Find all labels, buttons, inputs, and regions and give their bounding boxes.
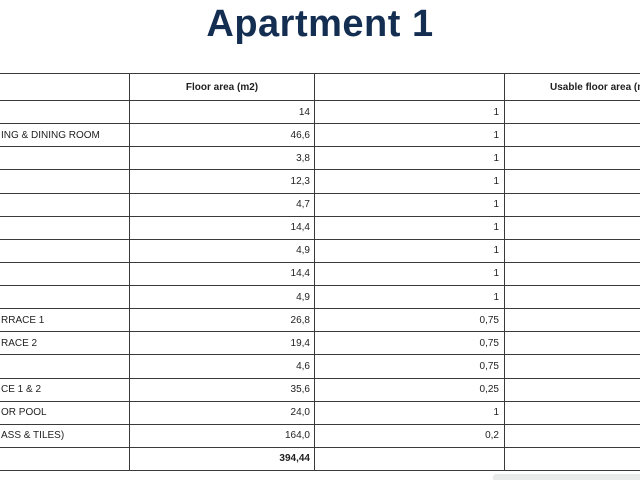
floor-area-cell: 26,8 [130, 309, 315, 332]
total-room-name-cell [0, 448, 130, 471]
room-name-cell [0, 355, 130, 378]
room-name-cell [0, 217, 130, 240]
coefficient-cell: 0,2 [315, 425, 505, 448]
floor-area-cell: 35,6 [130, 379, 315, 402]
usable-area-cell [505, 332, 640, 355]
usable-area-cell [505, 124, 640, 147]
room-name-cell [0, 263, 130, 286]
room-name-cell: ING & DINING ROOM [0, 124, 130, 147]
coefficient-cell: 1 [315, 101, 505, 124]
coefficient-cell: 0,75 [315, 309, 505, 332]
usable-area-cell [505, 402, 640, 425]
room-name-cell [0, 194, 130, 217]
floor-area-cell: 4,6 [130, 355, 315, 378]
coefficient-cell: 0,75 [315, 355, 505, 378]
coefficient-cell: 0,25 [315, 379, 505, 402]
page: Apartment 1 Floor area (m2)Usable floor … [0, 0, 640, 480]
floor-area-cell: 46,6 [130, 124, 315, 147]
coefficient-cell: 1 [315, 402, 505, 425]
floor-area-cell: 14,4 [130, 263, 315, 286]
floor-area-cell: 4,7 [130, 194, 315, 217]
coefficient-cell: 0,75 [315, 332, 505, 355]
total-usable-area-cell [505, 448, 640, 471]
room-name-cell [0, 147, 130, 170]
total-floor-area-cell: 394,44 [130, 448, 315, 471]
usable-area-cell [505, 194, 640, 217]
usable-area-cell [505, 425, 640, 448]
room-name-cell [0, 240, 130, 263]
coefficient-cell: 1 [315, 124, 505, 147]
room-name-cell: ASS & TILES) [0, 425, 130, 448]
floor-area-cell: 12,3 [130, 170, 315, 193]
page-title: Apartment 1 [0, 3, 640, 46]
header-usable-area: Usable floor area (m [505, 74, 640, 101]
usable-area-cell [505, 263, 640, 286]
room-name-cell: CE 1 & 2 [0, 379, 130, 402]
floor-area-cell: 4,9 [130, 240, 315, 263]
usable-area-cell [505, 240, 640, 263]
room-name-cell: RRACE 1 [0, 309, 130, 332]
usable-area-cell [505, 101, 640, 124]
usable-area-cell [505, 217, 640, 240]
coefficient-cell: 1 [315, 170, 505, 193]
usable-area-cell [505, 379, 640, 402]
header-floor-area: Floor area (m2) [130, 74, 315, 101]
room-name-cell [0, 170, 130, 193]
room-name-cell [0, 101, 130, 124]
coefficient-cell: 1 [315, 217, 505, 240]
room-name-cell: OR POOL [0, 402, 130, 425]
coefficient-cell: 1 [315, 147, 505, 170]
room-name-cell [0, 286, 130, 309]
usable-area-cell [505, 147, 640, 170]
table-container: Floor area (m2)Usable floor area (m141IN… [0, 73, 640, 471]
area-table: Floor area (m2)Usable floor area (m141IN… [0, 73, 640, 471]
floor-area-cell: 3,8 [130, 147, 315, 170]
floor-area-cell: 164,0 [130, 425, 315, 448]
horizontal-scrollbar-thumb[interactable] [493, 474, 640, 480]
usable-area-cell [505, 170, 640, 193]
room-name-cell: RACE 2 [0, 332, 130, 355]
coefficient-cell: 1 [315, 286, 505, 309]
usable-area-cell [505, 286, 640, 309]
coefficient-cell: 1 [315, 263, 505, 286]
usable-area-cell [505, 309, 640, 332]
total-coefficient-cell [315, 448, 505, 471]
coefficient-cell: 1 [315, 240, 505, 263]
floor-area-cell: 14 [130, 101, 315, 124]
floor-area-cell: 24,0 [130, 402, 315, 425]
floor-area-cell: 4,9 [130, 286, 315, 309]
floor-area-cell: 19,4 [130, 332, 315, 355]
floor-area-cell: 14,4 [130, 217, 315, 240]
header-coefficient [315, 74, 505, 101]
coefficient-cell: 1 [315, 194, 505, 217]
usable-area-cell [505, 355, 640, 378]
header-room [0, 74, 130, 101]
